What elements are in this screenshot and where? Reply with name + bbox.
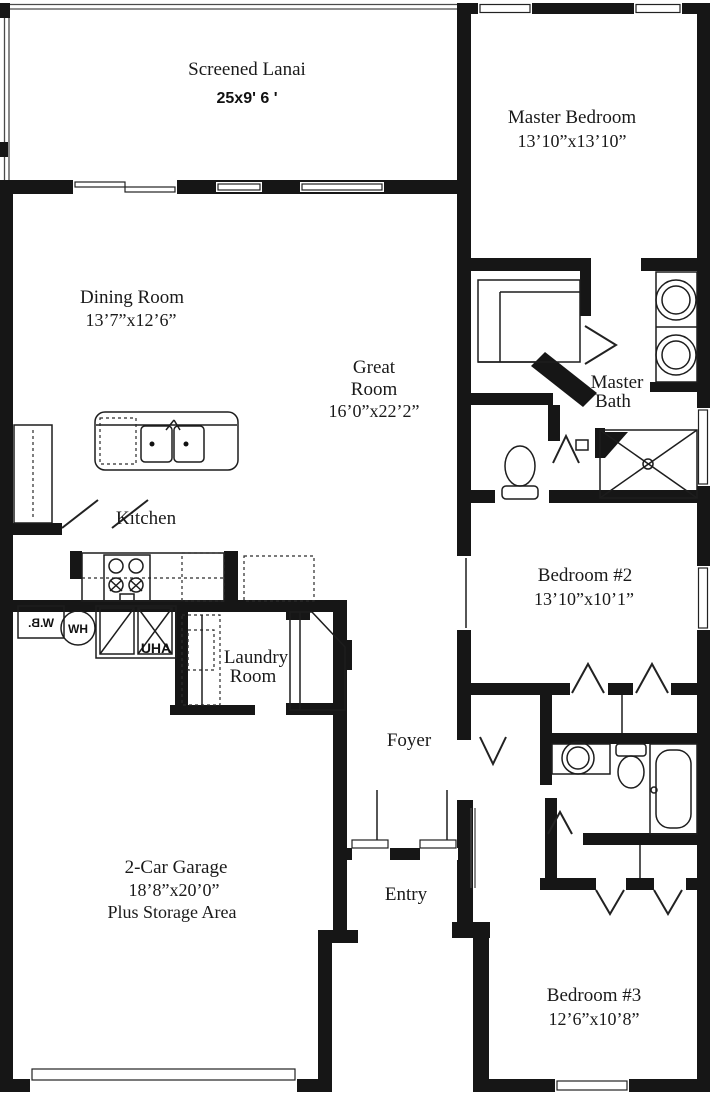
double-sink-icon	[141, 420, 204, 462]
garage-door	[32, 1069, 295, 1080]
great-room-label-1: Great	[353, 357, 396, 378]
hall-bath-vanity	[552, 742, 610, 774]
bedroom3-label: Bedroom #3	[547, 985, 641, 1006]
bedroom2-label: Bedroom #2	[538, 565, 632, 586]
kitchen-label: Kitchen	[116, 508, 177, 529]
master-bath-window	[699, 410, 708, 484]
lanai-slider-right	[125, 187, 175, 192]
master-shower-icon	[576, 430, 697, 498]
lanai-dims: 25x9' 6 '	[217, 90, 278, 107]
windows	[32, 5, 708, 1091]
laundry-label-1: Laundry	[224, 647, 289, 668]
great-room-window	[218, 184, 260, 190]
master-window-1	[480, 5, 530, 13]
bedroom2-window	[699, 568, 708, 628]
garage-utilities: W.B. HW AHU	[18, 606, 176, 658]
master-window-2	[636, 5, 680, 13]
great-room-label-2: Room	[351, 379, 398, 400]
walls	[0, 3, 710, 1092]
garage-dims: 18’8”x20’0”	[129, 880, 220, 900]
lanai-slider-left	[75, 182, 125, 187]
entry-doors	[352, 790, 475, 888]
lanai-label: Screened Lanai	[188, 59, 306, 80]
master-closet	[478, 280, 580, 362]
great-room-slider	[302, 184, 382, 190]
dining-room-label: Dining Room	[80, 287, 184, 308]
bedroom3-closet-door	[654, 890, 682, 914]
water-softener-label: W.B.	[28, 616, 54, 630]
garage-label: 2-Car Garage	[125, 857, 228, 878]
hall-bath-toilet-icon	[616, 744, 646, 788]
great-room-dims: 16’0”x22’2”	[329, 401, 420, 421]
entry-label: Entry	[385, 884, 428, 905]
floor-plan-drawing: W.B. HW AHU	[0, 0, 710, 1094]
master-vanity	[656, 272, 697, 382]
bedroom2-dims: 13’10”x10’1”	[534, 589, 634, 609]
wall-openings	[30, 3, 710, 1092]
hall-closet-door	[480, 737, 506, 764]
water-heater-label: HW	[67, 622, 88, 636]
kitchen-island	[95, 412, 238, 470]
dining-room-dims: 13’7”x12’6”	[86, 310, 177, 330]
air-handler-label: AHU	[141, 640, 171, 656]
master-bedroom-dims: 13’10”x13’10”	[518, 131, 627, 151]
master-bath-label-2: Bath	[595, 391, 631, 412]
bedroom3-window	[557, 1081, 627, 1090]
laundry-label-2: Room	[230, 666, 277, 687]
floor-plan: W.B. HW AHU	[0, 0, 710, 1094]
bedroom3-dims: 12’6”x10’8”	[549, 1009, 640, 1029]
foyer-label: Foyer	[387, 730, 432, 751]
bedroom3-closet-door	[596, 890, 624, 914]
garage-note: Plus Storage Area	[108, 902, 237, 922]
master-bath-door-swing	[585, 326, 616, 364]
kitchen-counter	[82, 553, 314, 601]
master-bath-label-1: Master	[591, 372, 644, 393]
cabinet-dashed	[244, 556, 314, 601]
bathtub-icon	[650, 744, 697, 834]
refrigerator-icon	[182, 553, 224, 601]
door-swing	[62, 500, 98, 528]
master-bedroom-label: Master Bedroom	[508, 107, 636, 128]
